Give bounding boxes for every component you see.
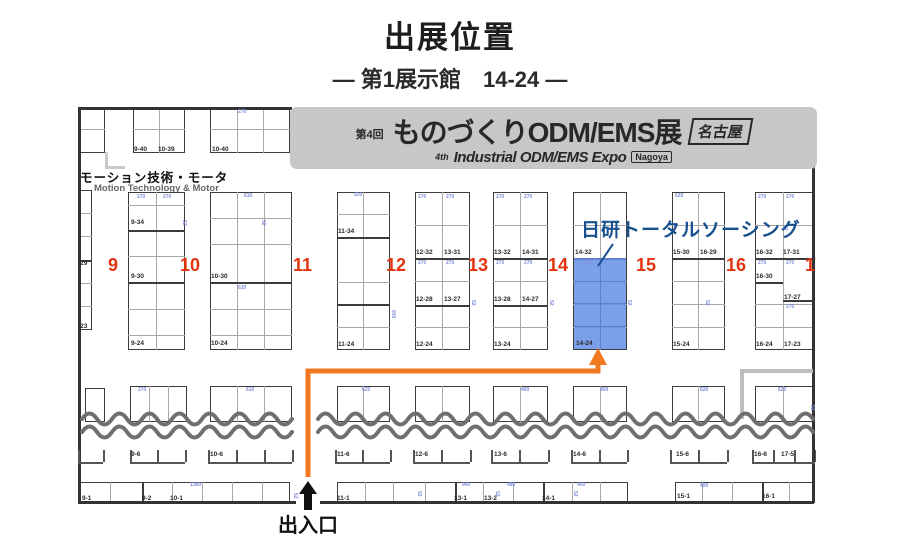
booth-divider [337, 237, 390, 239]
booth-label: 16-24 [756, 341, 773, 348]
area-number: 270 [138, 388, 146, 393]
open-booth-tick [157, 450, 159, 462]
booth-gridline [263, 107, 264, 153]
booth-label: 9-2 [142, 495, 151, 502]
banner-subtitle-row: 4th Industrial ODM/EMS Expo Nagoya [435, 149, 672, 166]
column-number: 15 [636, 255, 656, 275]
open-booth-baseline [208, 462, 292, 464]
booth-label: 14-32 [575, 249, 592, 256]
booth-label: -23 [78, 323, 87, 330]
area-number: 270 [137, 195, 145, 200]
area-number: 400 [521, 388, 529, 393]
area-number: 52 [260, 220, 265, 226]
area-number: 1380 [190, 483, 201, 488]
page-subtitle: ― 第1展示館 14-24 ― [0, 62, 900, 94]
area-number: 52 [494, 491, 499, 497]
area-number: 52 [809, 405, 814, 411]
open-booth-tick [362, 450, 364, 462]
booth-gridline [698, 386, 699, 422]
area-number: 52 [704, 300, 709, 306]
open-booth-baseline [752, 462, 815, 464]
booth-label: 9-40 [134, 146, 147, 153]
booth-gridline [128, 256, 185, 257]
area-number: 930 [390, 310, 395, 318]
booth-divider [128, 230, 185, 232]
area-number: 52 [181, 220, 186, 226]
open-booth-tick [390, 450, 392, 462]
open-booth-tick [236, 450, 238, 462]
open-booth-tick [185, 450, 187, 462]
wall [740, 369, 744, 419]
banner-title-row: 第4回 ものづくりODM/EMS展 名古屋 [356, 111, 752, 151]
wall [105, 166, 125, 169]
area-number: 52 [416, 491, 421, 497]
entrance-arrow-stem [304, 493, 312, 510]
area-number: 270 [786, 195, 794, 200]
open-booth-baseline [130, 462, 185, 464]
area-number: 270 [786, 305, 794, 310]
booth-label: 17-27 [784, 294, 801, 301]
booth-label: 15-1 [677, 493, 690, 500]
column-number: 14 [548, 255, 568, 275]
area-number: 620 [354, 193, 362, 198]
booth-label: 9-34 [131, 219, 144, 226]
banner-city-badge: 名古屋 [688, 118, 754, 145]
booth-label: 9-30 [131, 273, 144, 280]
booth-gridline [415, 327, 470, 328]
separation-wave [318, 427, 813, 438]
banner-en-prefix: 4th [435, 152, 449, 162]
area-number: 480 [507, 483, 515, 488]
area-number: 270 [524, 195, 532, 200]
booth-gridline [168, 386, 169, 422]
booth-gridline [600, 482, 601, 503]
booth-block [80, 482, 290, 503]
highlighted-booth-gridline [574, 326, 626, 327]
exhibitor-name-label: 日研トータルソーシング [581, 215, 801, 242]
booth-gridline [672, 304, 725, 305]
booth-label: 16-1 [762, 493, 775, 500]
booth-divider [672, 258, 725, 260]
area-number: 400 [700, 484, 708, 489]
booth-gridline [732, 482, 733, 503]
area-number: 620 [362, 388, 370, 393]
booth-label: 13-24 [494, 341, 511, 348]
booth-gridline [337, 327, 390, 328]
booth-label: 14-31 [522, 249, 539, 256]
booth-block [210, 192, 292, 350]
booth-gridline [672, 327, 725, 328]
banner-en-city-badge: Nagoya [631, 151, 672, 163]
booth-label: 12-32 [416, 249, 433, 256]
area-number: 52 [470, 300, 475, 306]
booth-block [85, 388, 105, 422]
booth-label: 11-6 [337, 451, 350, 458]
booth-gridline [210, 129, 290, 130]
booth-gridline [210, 244, 292, 245]
booth-gridline [210, 218, 292, 219]
open-booth-tick [292, 450, 294, 462]
booth-gridline [789, 482, 790, 503]
area-number: 52 [292, 493, 297, 499]
booth-gridline [133, 129, 185, 130]
open-booth-tick [815, 450, 816, 462]
open-booth-tick [491, 450, 493, 462]
booth-gridline [128, 309, 185, 310]
highlighted-booth-gridline [574, 281, 626, 282]
area-number: 620 [778, 388, 786, 393]
booth-label: 10-40 [212, 146, 229, 153]
area-number: 270 [163, 195, 171, 200]
open-booth-baseline [335, 462, 390, 464]
area-number: 610 [244, 194, 252, 199]
booth-label: 13-1 [454, 495, 467, 502]
booth-label: 9-1 [82, 495, 91, 502]
area-number: 270 [446, 261, 454, 266]
booth-gridline [755, 304, 813, 305]
booth-label: 10-24 [211, 340, 228, 347]
expo-banner: 第4回 ものづくりODM/EMS展 名古屋 4th Industrial ODM… [290, 107, 817, 169]
booth-label: 13-28 [494, 296, 511, 303]
entrance-label: 出入口 [262, 509, 354, 538]
booth-gridline [415, 281, 470, 282]
area-number: 270 [524, 261, 532, 266]
booth-label: 10-30 [211, 273, 228, 280]
open-booth-tick [264, 450, 266, 462]
open-booth-tick [519, 450, 521, 462]
area-number: 270 [446, 195, 454, 200]
booth-label: 16-30 [756, 273, 773, 280]
column-number: 12 [386, 255, 406, 275]
booth-label: 11-24 [338, 341, 354, 348]
booth-divider [755, 282, 783, 284]
open-booth-baseline [670, 462, 727, 464]
booth-gridline [149, 386, 150, 422]
wall [78, 501, 296, 504]
area-number: 400 [600, 388, 608, 393]
banner-title: ものづくりODM/EMS展 [393, 111, 682, 151]
open-booth-tick [441, 450, 443, 462]
booth-gridline [493, 225, 548, 226]
booth-gridline [672, 281, 725, 282]
area-number: 960 [462, 483, 470, 488]
area-number: 400 [577, 483, 585, 488]
booth-divider [128, 282, 185, 284]
open-booth-tick [794, 450, 796, 462]
booth-label: 10-6 [210, 451, 223, 458]
wall [740, 369, 813, 373]
open-booth-baseline [571, 462, 627, 464]
booth-gridline [210, 335, 292, 336]
area-number: 270 [496, 195, 504, 200]
area-number: 270 [786, 261, 794, 266]
booth-gridline [202, 482, 203, 503]
booth-gridline [415, 225, 470, 226]
area-number: 620 [675, 194, 683, 199]
booth-gridline [393, 482, 394, 503]
route-arrowhead [589, 348, 607, 365]
column-number: 11 [293, 255, 312, 275]
entrance-arrow-icon [299, 481, 317, 511]
booth-gridline [755, 327, 813, 328]
booth-block [80, 107, 105, 153]
booth-gridline [264, 192, 265, 350]
highlighted-booth-gridline [574, 303, 626, 304]
open-booth-tick [548, 450, 550, 462]
booth-label: 12-6 [415, 451, 428, 458]
area-number: 270 [238, 110, 246, 115]
booth-label: 13-32 [494, 249, 511, 256]
booth-gridline [493, 327, 548, 328]
open-booth-tick [670, 450, 672, 462]
booth-label: 12-28 [416, 296, 433, 303]
booth-label: 16-29 [700, 249, 717, 256]
open-booth-tick [727, 450, 729, 462]
open-booth-tick [470, 450, 472, 462]
banner-edition: 第4回 [356, 126, 384, 142]
booth-label: 10-39 [158, 146, 175, 153]
booth-gridline [110, 482, 111, 503]
column-number: 16 [726, 255, 746, 275]
banner-en-title: Industrial ODM/EMS Expo [454, 149, 627, 166]
booth-label: 9-24 [131, 340, 144, 347]
area-number: 270 [418, 261, 426, 266]
column-number: 10 [180, 255, 200, 275]
column-number: 9 [108, 255, 118, 275]
booth-gridline [425, 482, 426, 503]
booth-label: 15-30 [673, 249, 690, 256]
booth-label: 15-24 [673, 341, 690, 348]
booth-label: -29 [78, 260, 87, 267]
booth-gridline [262, 482, 263, 503]
booth-label: 14-6 [573, 451, 586, 458]
column-number: 13 [468, 255, 488, 275]
open-booth-tick [103, 450, 105, 462]
booth-label: 14-27 [522, 296, 539, 303]
booth-label: 17-31 [783, 249, 800, 256]
booth-label: 17-23 [784, 341, 801, 348]
area-number: 270 [758, 195, 766, 200]
booth-block [675, 482, 813, 503]
open-booth-baseline [78, 462, 103, 464]
booth-gridline [128, 205, 185, 206]
separation-wave [318, 414, 813, 425]
open-booth-tick [599, 450, 601, 462]
booth-label: 16-6 [754, 451, 767, 458]
booth-label: 10-1 [170, 495, 183, 502]
booth-gridline [156, 192, 157, 350]
column-number: 17 [805, 255, 816, 275]
booth-divider [415, 305, 470, 307]
open-booth-tick [78, 450, 80, 462]
booth-divider [210, 282, 292, 284]
open-booth-baseline [491, 462, 548, 464]
booth-label: 11-1 [337, 495, 350, 502]
area-number: 270 [496, 261, 504, 266]
booth-label: 13-31 [444, 249, 461, 256]
open-booth-tick [698, 450, 700, 462]
separation-wave [82, 427, 292, 438]
booth-divider [493, 305, 548, 307]
booth-gridline [493, 281, 548, 282]
booth-gridline [337, 282, 390, 283]
wall [78, 107, 292, 110]
wall [78, 107, 81, 503]
area-number: 620 [700, 388, 708, 393]
area-number: 270 [583, 261, 591, 266]
area-number: 52 [548, 300, 553, 306]
open-booth-baseline [413, 462, 470, 464]
area-number: 52 [572, 491, 577, 497]
booth-gridline [337, 214, 390, 215]
page-title: 出展位置 [0, 12, 900, 57]
booth-label: 9-6 [131, 451, 140, 458]
booth-gridline [442, 386, 443, 422]
booth-label: 13-27 [444, 296, 461, 303]
booth-label: 14-1 [542, 495, 555, 502]
area-number: 270 [758, 261, 766, 266]
booth-label: 14-24 [576, 340, 593, 347]
booth-label: 15-6 [676, 451, 689, 458]
open-booth-tick [773, 450, 775, 462]
booth-divider [337, 304, 390, 306]
booth-label: 13-6 [494, 451, 507, 458]
booth-gridline [232, 482, 233, 503]
area-number: 620 [238, 286, 246, 291]
booth-gridline [210, 309, 292, 310]
booth-gridline [365, 482, 366, 503]
wall [320, 501, 814, 504]
open-booth-tick [627, 450, 629, 462]
booth-gridline [237, 386, 238, 422]
booth-gridline [128, 335, 185, 336]
booth-gridline [264, 386, 265, 422]
booth-gridline [237, 192, 238, 350]
booth-label: 17-5 [781, 451, 794, 458]
area-number: 52 [626, 300, 631, 306]
booth-gridline [80, 129, 105, 130]
booth-label: 11-34 [338, 228, 354, 235]
area-number: 270 [418, 195, 426, 200]
booth-label: 12-24 [416, 341, 433, 348]
area-number: 610 [246, 388, 254, 393]
booth-label: 16-32 [756, 249, 773, 256]
